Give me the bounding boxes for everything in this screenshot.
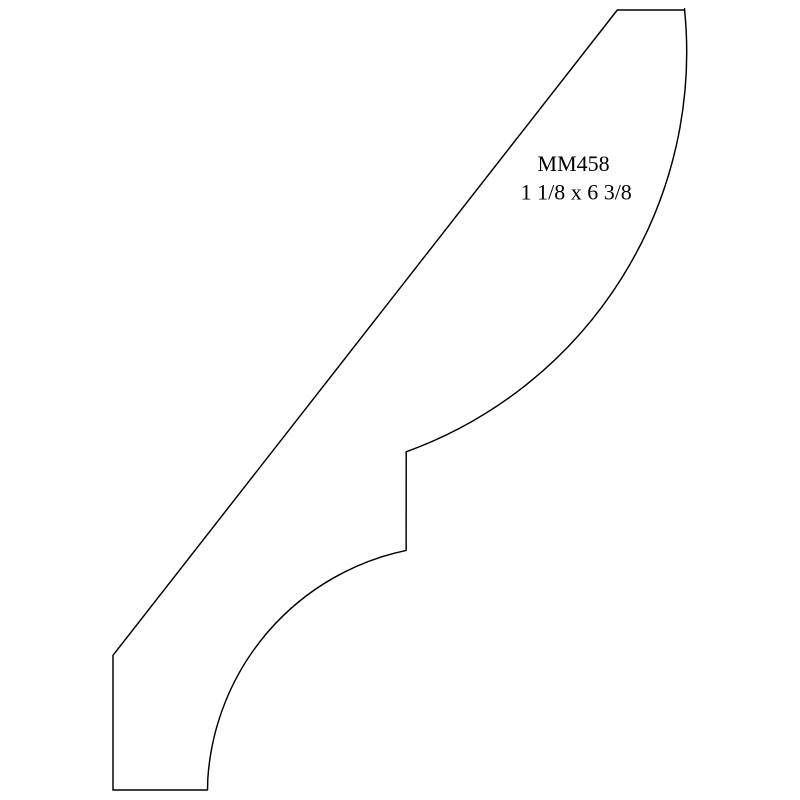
svg-text:1 1/8 x 6 3/8: 1 1/8 x 6 3/8 [521,180,632,205]
svg-text:MM458: MM458 [538,151,610,176]
